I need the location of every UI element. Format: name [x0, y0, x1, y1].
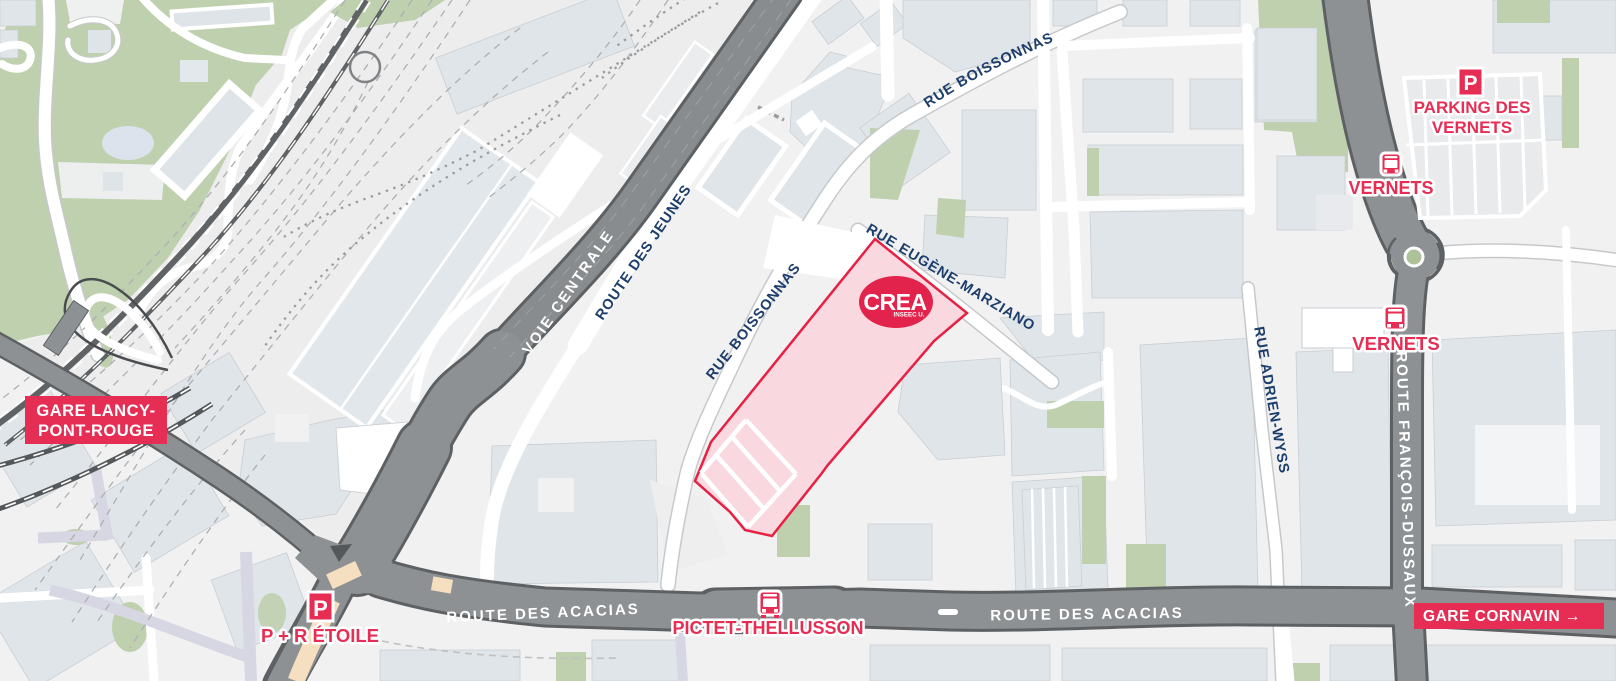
svg-text:INSEEC U.: INSEEC U.	[894, 312, 925, 319]
svg-text:GARE CORNAVIN →: GARE CORNAVIN →	[1423, 608, 1581, 625]
svg-text:VERNETS: VERNETS	[1352, 333, 1439, 354]
svg-text:PARKING DES: PARKING DES	[1414, 98, 1531, 117]
svg-text:VERNETS: VERNETS	[1432, 118, 1512, 137]
svg-text:P: P	[1463, 72, 1477, 95]
svg-text:ROUTE DES ACACIAS: ROUTE DES ACACIAS	[990, 605, 1184, 625]
svg-text:P + R ÉTOILE: P + R ÉTOILE	[261, 625, 379, 646]
svg-text:GARE LANCY-: GARE LANCY-	[36, 402, 155, 420]
svg-text:PICTET-THELLUSSON: PICTET-THELLUSSON	[672, 618, 863, 638]
svg-text:P: P	[313, 596, 328, 621]
svg-text:PONT-ROUGE: PONT-ROUGE	[38, 422, 154, 440]
svg-text:VERNETS: VERNETS	[1348, 178, 1433, 198]
